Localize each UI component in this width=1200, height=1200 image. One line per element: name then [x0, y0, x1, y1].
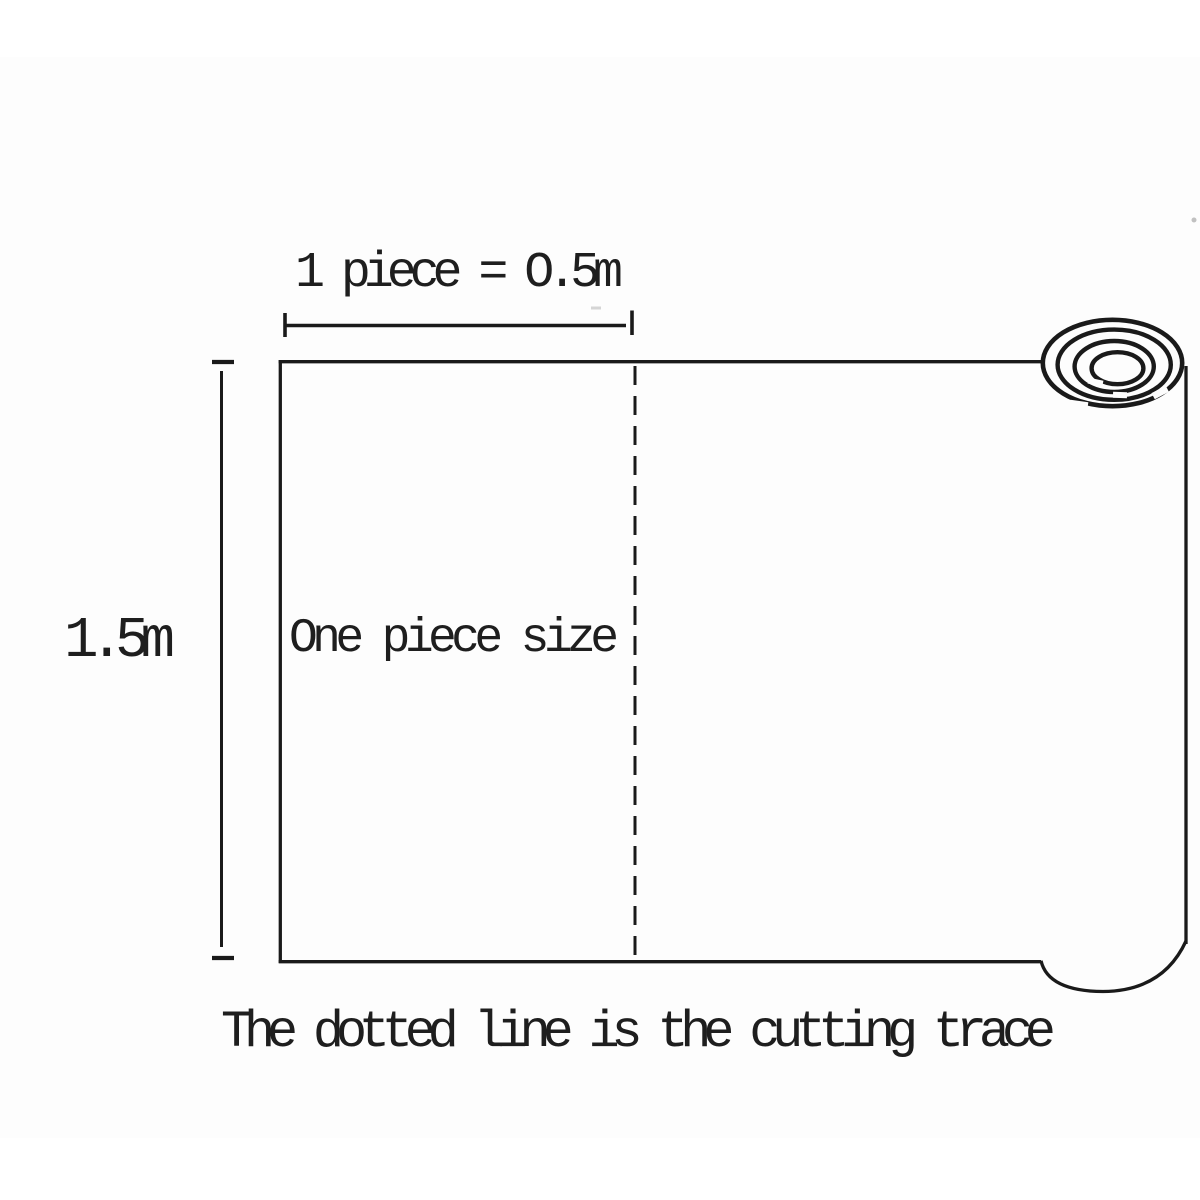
svg-text:The dotted line is the cutting: The dotted line is the cutting trace	[221, 1003, 1056, 1062]
svg-text:1 piece = O.5m: 1 piece = O.5m	[295, 245, 623, 302]
svg-text:1.5m: 1.5m	[64, 609, 175, 674]
svg-text:One piece size: One piece size	[289, 612, 619, 666]
